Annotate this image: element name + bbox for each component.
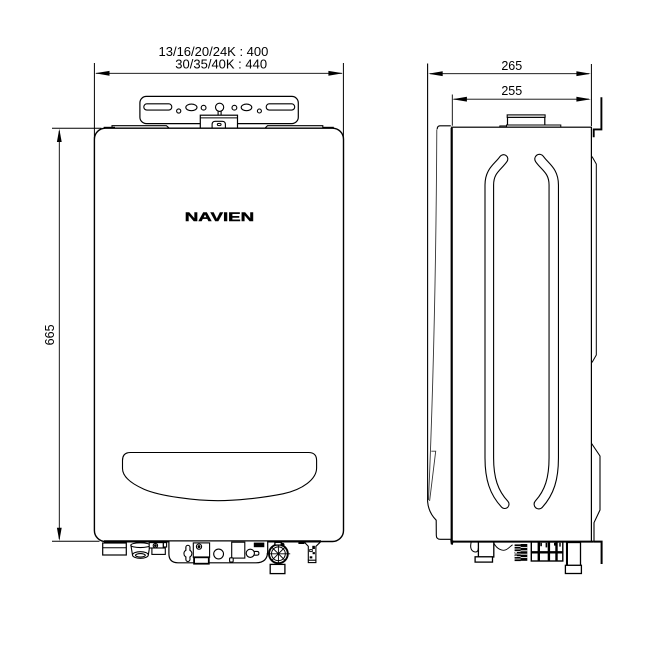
svg-text:255: 255 <box>501 84 522 98</box>
svg-text:NAVIEN: NAVIEN <box>185 210 255 224</box>
svg-text:265: 265 <box>501 59 522 73</box>
svg-text:30/35/40K : 440: 30/35/40K : 440 <box>175 56 267 71</box>
svg-text:665: 665 <box>43 324 57 345</box>
